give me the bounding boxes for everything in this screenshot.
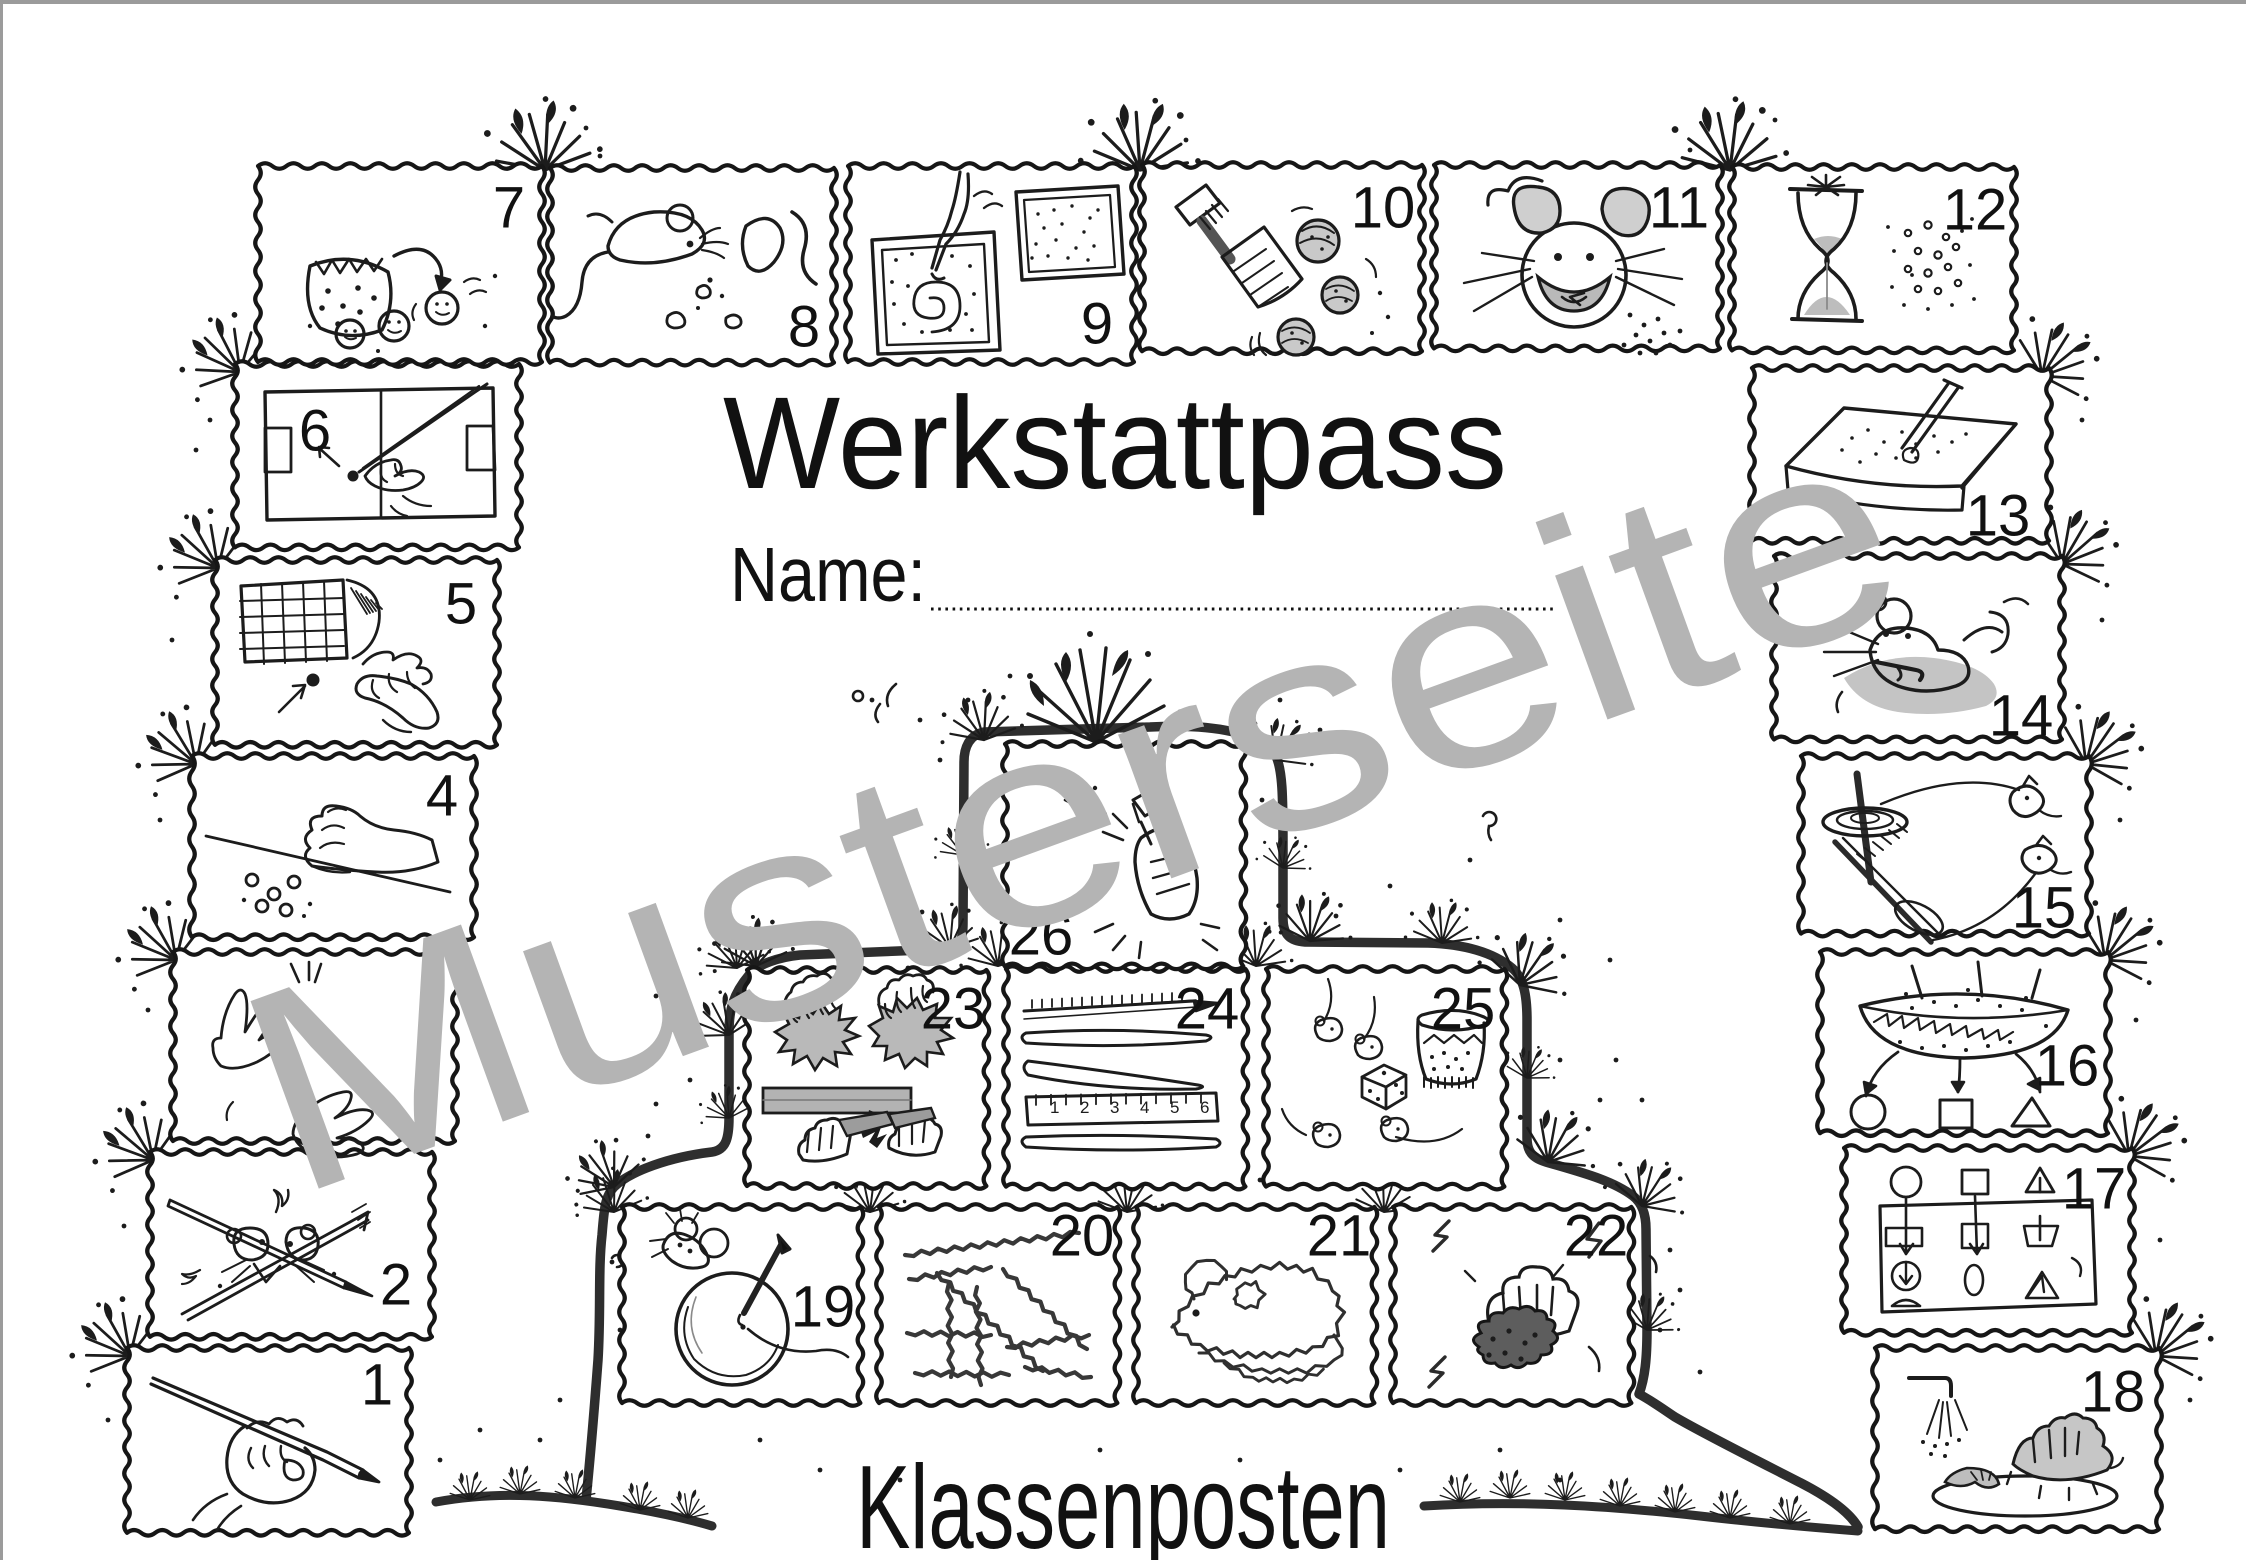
- svg-text:4: 4: [426, 764, 458, 829]
- svg-text:9: 9: [1081, 292, 1113, 357]
- svg-text:24: 24: [1175, 977, 1240, 1042]
- svg-text:1: 1: [361, 1353, 393, 1418]
- svg-text:13: 13: [1966, 484, 2031, 549]
- svg-text:14: 14: [1989, 684, 2054, 749]
- svg-text:25: 25: [1431, 977, 1496, 1042]
- svg-text:22: 22: [1564, 1204, 1629, 1269]
- svg-text:5: 5: [1170, 1098, 1179, 1117]
- svg-text:11: 11: [1649, 176, 1709, 241]
- svg-text:6: 6: [299, 399, 331, 464]
- svg-text:8: 8: [788, 295, 820, 360]
- svg-text:12: 12: [1943, 178, 2008, 243]
- svg-text:5: 5: [445, 572, 477, 637]
- svg-text:7: 7: [493, 176, 525, 241]
- svg-text:19: 19: [791, 1275, 856, 1340]
- svg-text:Werkstattpass: Werkstattpass: [723, 369, 1507, 516]
- svg-text:6: 6: [1200, 1098, 1209, 1117]
- svg-text:10: 10: [1351, 176, 1416, 241]
- svg-text:17: 17: [2062, 1157, 2127, 1222]
- svg-text:2: 2: [380, 1253, 412, 1318]
- svg-text:Klassenposten: Klassenposten: [856, 1441, 1390, 1560]
- svg-text:Name:: Name:: [730, 532, 926, 618]
- svg-text:1: 1: [1050, 1098, 1059, 1117]
- svg-text:4: 4: [1140, 1098, 1149, 1117]
- svg-text:21: 21: [1307, 1204, 1372, 1269]
- svg-text:3: 3: [1110, 1098, 1119, 1117]
- svg-text:20: 20: [1050, 1204, 1115, 1269]
- svg-text:16: 16: [2035, 1034, 2100, 1099]
- svg-text:15: 15: [2012, 876, 2077, 941]
- svg-text:2: 2: [1080, 1098, 1089, 1117]
- svg-text:18: 18: [2081, 1360, 2146, 1425]
